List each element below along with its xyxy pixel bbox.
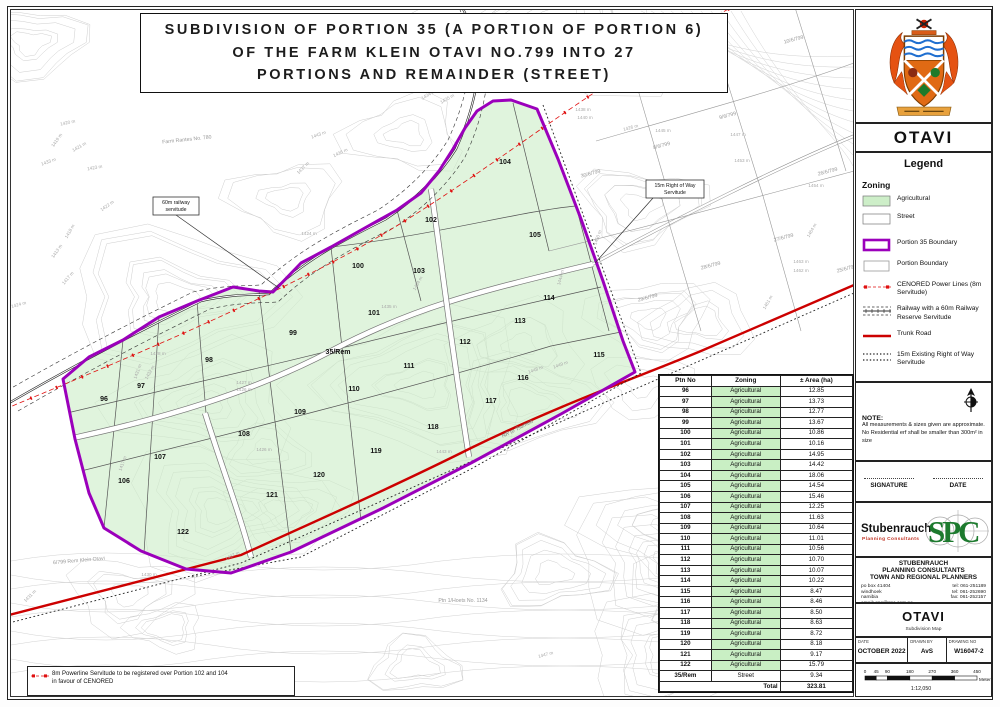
table-row: 119Agricultural8.72	[660, 629, 853, 640]
contour-elevation-label: 1422 m	[99, 199, 115, 212]
ptn-no-cell: 99	[660, 418, 712, 429]
area-cell: 14.95	[780, 449, 852, 460]
note-line1: All measurements & sizes given are appro…	[862, 422, 985, 430]
ptn-no-cell: 109	[660, 523, 712, 534]
contour-elevation-label: 1430 m	[141, 572, 156, 577]
contour-elevation-label: 1426 m	[236, 387, 251, 392]
swatch-street-legend-icon	[862, 212, 892, 226]
zoning-cell: Agricultural	[711, 555, 780, 566]
map-title-line3: PORTIONS AND REMAINDER (STREET)	[141, 64, 727, 86]
ptn-no-cell: 100	[660, 428, 712, 439]
table-header-cell: ± Area (ha)	[780, 376, 852, 387]
ptn-no-cell: 106	[660, 492, 712, 503]
area-cell: 14.54	[780, 481, 852, 492]
table-row: 122Agricultural15.79	[660, 660, 853, 671]
north-arrow-icon	[961, 388, 981, 414]
signature-line: SIGNATURE	[864, 478, 914, 489]
table-row: 107Agricultural12.25	[660, 502, 853, 513]
scale-tick-label: 0	[864, 669, 867, 674]
area-cell: 18.06	[780, 470, 852, 481]
scale-bar-box: 04590180270360450Meters1:12,050	[855, 663, 992, 697]
area-cell: 8.63	[780, 618, 852, 629]
zoning-cell: Agricultural	[711, 660, 780, 671]
table-row: 121Agricultural9.17	[660, 650, 853, 661]
legend-items: Portion 35 BoundaryPortion BoundaryCENOR…	[862, 238, 985, 367]
zoning-cell: Agricultural	[711, 639, 780, 650]
zoning-cell: Agricultural	[711, 608, 780, 619]
portion-label: 120	[313, 472, 325, 479]
area-cell: 8.46	[780, 597, 852, 608]
otavi-coat-of-arms-icon	[882, 13, 966, 119]
town-name-box: OTAVI	[855, 123, 992, 152]
contour-elevation-label: 1433 m	[40, 157, 56, 167]
contour-elevation-label: 1413 m	[50, 243, 63, 259]
portion-label: 35/Rem	[326, 349, 351, 356]
zoning-cell: Agricultural	[711, 428, 780, 439]
area-cell: 12.85	[780, 386, 852, 397]
logo-firm-name: Stubenrauch	[861, 523, 931, 535]
ptn-no-cell: 102	[660, 449, 712, 460]
firm-phone-line: fax: 061-252157	[951, 595, 986, 601]
portion-label: 122	[177, 529, 189, 536]
servitude-callout-text: Servitude	[664, 190, 686, 196]
area-cell: 8.72	[780, 629, 852, 640]
ptn-no-cell: 104	[660, 470, 712, 481]
area-cell: 12.77	[780, 407, 852, 418]
contour-elevation-label: 1443 m	[310, 130, 326, 140]
firm-line1: STUBENRAUCH	[861, 560, 986, 567]
contour-elevation-label: 1435 m	[381, 304, 396, 309]
contour-elevation-label: 1443 m	[436, 449, 451, 454]
servitude-callout: 15m Right of WayServitude	[595, 180, 704, 263]
scale-ratio-label: 1:12,050	[911, 686, 931, 692]
spc-monogram-icon: SPC	[925, 508, 989, 554]
zoning-cell: Agricultural	[711, 418, 780, 429]
powerline-note: 8m Powerline Servitude to be registered …	[27, 666, 295, 696]
area-cell: 10.07	[780, 565, 852, 576]
zoning-cell: Agricultural	[711, 513, 780, 524]
table-header-row: Ptn NoZoning± Area (ha)	[660, 376, 853, 387]
contour-elevation-label: 1417 m	[61, 270, 75, 285]
legend-item: Portion 35 Boundary	[862, 238, 985, 252]
date-line: DATE	[933, 478, 983, 489]
zoning-items: AgriculturalStreet	[862, 194, 985, 226]
area-cell: 10.64	[780, 523, 852, 534]
contour-elevation-label: 1420 m	[60, 118, 76, 126]
scale-tick-label: 270	[928, 669, 936, 674]
railway-legend-icon	[862, 304, 892, 318]
purple-box-legend-icon	[862, 238, 892, 252]
contour-elevation-label: 1428 m	[150, 351, 165, 356]
titleblock-row: DATE OCTOBER 2022 DRAWN BY AvS DRAWING N…	[855, 637, 992, 663]
portion-label: 107	[154, 454, 166, 461]
project-box: OTAVI Subdivision Map	[855, 603, 992, 637]
project-subtitle: Subdivision Map	[856, 627, 991, 632]
servitude-callout: 60m railwayservitude	[153, 197, 279, 288]
portion-label: 115	[593, 352, 604, 359]
contour-elevation-label: 1424 m	[11, 300, 27, 309]
contour-elevation-label: 1440 m	[577, 115, 592, 120]
ptn-no-cell: 98	[660, 407, 712, 418]
farm-parcel-label: 8/6/799	[653, 141, 671, 151]
area-cell: 15.46	[780, 492, 852, 503]
contour-elevation-label: 1454 m	[808, 183, 823, 188]
portion-label: 118	[427, 424, 438, 431]
map-title-line2: OF THE FARM KLEIN OTAVI NO.799 INTO 27	[141, 42, 727, 64]
area-cell: 8.50	[780, 608, 852, 619]
scale-unit-label: Meters	[979, 677, 991, 682]
area-cell: 10.70	[780, 555, 852, 566]
ptn-no-cell: 111	[660, 544, 712, 555]
swatch-agri-legend-icon	[862, 194, 892, 208]
area-cell: 10.16	[780, 439, 852, 450]
table-row: 106Agricultural15.46	[660, 492, 853, 503]
zoning-cell: Agricultural	[711, 481, 780, 492]
portion-label: 102	[425, 217, 437, 224]
zoning-cell: Agricultural	[711, 576, 780, 587]
table-row: 97Agricultural13.73	[660, 397, 853, 408]
portion-label: 121	[266, 492, 278, 499]
portion-label: 109	[294, 409, 306, 416]
ptn-no-cell: 103	[660, 460, 712, 471]
farm-parcel-label: 10/6/799	[783, 34, 804, 45]
table-row: 100Agricultural10.86	[660, 428, 853, 439]
portion-table: Ptn NoZoning± Area (ha)96Agricultural12.…	[659, 375, 853, 692]
area-cell: 9.34	[780, 671, 852, 682]
contour-elevation-label: 1419 m	[50, 132, 63, 148]
zoning-cell: Agricultural	[711, 586, 780, 597]
legend-item: 15m Existing Right of Way Servitude	[862, 350, 985, 367]
table-header-cell: Zoning	[711, 376, 780, 387]
portion-label: 108	[238, 431, 250, 438]
ptn-no-cell: 119	[660, 629, 712, 640]
drawn-by-value: AvS	[908, 648, 945, 655]
portion-label: 104	[499, 159, 511, 166]
ptn-no-cell: 114	[660, 576, 712, 587]
area-cell: 9.17	[780, 650, 852, 661]
legend-box: Legend Zoning AgriculturalStreet Portion…	[855, 152, 992, 382]
area-cell: 11.01	[780, 534, 852, 545]
table-row: 112Agricultural10.70	[660, 555, 853, 566]
legend-item-label: Railway with a 60m Railway Reserve Servi…	[897, 304, 985, 321]
contour-elevation-label: 1424 m	[301, 231, 316, 236]
firm-line2: PLANNING CONSULTANTS	[861, 567, 986, 574]
farm-parcel-label: 25/6/799	[836, 263, 854, 274]
portion-label: 106	[118, 478, 130, 485]
portion-label: 112	[459, 339, 470, 346]
zoning-item-label: Agricultural	[897, 194, 930, 203]
farm-parcel-label: 27/6/799	[773, 232, 794, 243]
zoning-cell: Agricultural	[711, 386, 780, 397]
portion-area-table: Ptn NoZoning± Area (ha)96Agricultural12.…	[658, 374, 854, 693]
ptn-no-cell: 116	[660, 597, 712, 608]
area-cell: 13.67	[780, 418, 852, 429]
farm-parcel-label: 29/6/799	[637, 292, 658, 303]
portion-label: 100	[352, 263, 364, 270]
ptn-no-cell: 112	[660, 555, 712, 566]
contour-elevation-label: 1447 m	[730, 132, 745, 137]
power-line-legend-icon	[862, 280, 892, 294]
table-row: 98Agricultural12.77	[660, 407, 853, 418]
servitude-callout-text: 15m Right of Way	[654, 183, 695, 189]
farm-parcel-label: 6/799 Rem Klein Otavi	[53, 556, 105, 567]
zoning-cell: Agricultural	[711, 544, 780, 555]
table-header-cell: Ptn No	[660, 376, 712, 387]
table-row: 103Agricultural14.42	[660, 460, 853, 471]
legend-item: Trunk Road	[862, 329, 985, 343]
servitude-callout-text: servitude	[165, 207, 186, 213]
zoning-item: Agricultural	[862, 194, 985, 208]
portion-label: 103	[413, 268, 425, 275]
table-row: 99Agricultural13.67	[660, 418, 853, 429]
ptn-no-cell: 113	[660, 565, 712, 576]
portion-label: 117	[485, 398, 496, 405]
zoning-title: Zoning	[862, 180, 985, 190]
portion-label: 97	[137, 383, 145, 390]
otavi-crest-box	[855, 9, 992, 123]
spc-logo-box: Stubenrauch Planning Consultants SPC	[855, 502, 992, 557]
drawn-by-header: DRAWN BY	[910, 639, 932, 644]
farm-parcel-label: 28/6/799	[700, 260, 721, 271]
date-value: OCTOBER 2022	[856, 648, 907, 655]
note-box: NOTE: All measurements & sizes given are…	[855, 382, 992, 461]
table-row: 111Agricultural10.56	[660, 544, 853, 555]
map-title: SUBDIVISION OF PORTION 35 (A PORTION OF …	[140, 13, 728, 93]
area-cell: 10.22	[780, 576, 852, 587]
area-cell: 8.47	[780, 586, 852, 597]
ptn-no-cell: 96	[660, 386, 712, 397]
right-of-way-road	[593, 136, 854, 264]
contour-elevation-label: 1418 m	[64, 223, 76, 239]
ptn-no-cell: 97	[660, 397, 712, 408]
servitude-callout-text: 60m railway	[162, 200, 190, 206]
portion35-area-fill	[63, 100, 635, 573]
total-label-cell: Total	[660, 681, 781, 692]
ptn-no-cell: 115	[660, 586, 712, 597]
ptn-no-cell: 120	[660, 639, 712, 650]
scale-tick-label: 360	[951, 669, 959, 674]
ptn-no-cell: 35/Rem	[660, 671, 712, 682]
area-cell: 10.86	[780, 428, 852, 439]
contour-elevation-label: 1423 m	[87, 164, 103, 172]
area-cell: 10.56	[780, 544, 852, 555]
spc-monogram-text: SPC	[928, 514, 979, 549]
table-row: 105Agricultural14.54	[660, 481, 853, 492]
legend-item-label: Portion Boundary	[897, 259, 948, 268]
area-cell: 12.25	[780, 502, 852, 513]
signature-box: SIGNATURE DATE	[855, 461, 992, 502]
contour-elevation-label: 1447 m	[538, 650, 554, 659]
zoning-cell: Agricultural	[711, 597, 780, 608]
zoning-cell: Agricultural	[711, 492, 780, 503]
powerline-symbol-icon	[31, 673, 49, 679]
contour-elevation-label: 1461 m	[762, 294, 774, 310]
table-row: 118Agricultural8.63	[660, 618, 853, 629]
scale-tick-label: 450	[973, 669, 981, 674]
portion-label: 96	[100, 396, 108, 403]
area-cell: 13.73	[780, 397, 852, 408]
total-value-cell: 323.81	[780, 681, 852, 692]
contour-elevation-label: 1431 m	[23, 589, 37, 603]
firm-line3: TOWN AND REGIONAL PLANNERS	[861, 574, 986, 581]
trunk-road-legend-icon	[862, 329, 892, 343]
ptn-no-cell: 101	[660, 439, 712, 450]
portion-label: 101	[368, 310, 380, 317]
table-row: 110Agricultural11.01	[660, 534, 853, 545]
portion-label: 105	[529, 232, 541, 239]
portion-label: 99	[289, 330, 297, 337]
powerline-note-line1: 8m Powerline Servitude to be registered …	[52, 670, 290, 678]
area-cell: 8.18	[780, 639, 852, 650]
drawing-no-header: DRAWING NO	[949, 639, 977, 644]
ptn-no-cell: 110	[660, 534, 712, 545]
portion-label: 110	[348, 386, 359, 393]
contour-elevation-label: 1464 m	[806, 222, 818, 238]
scale-tick-label: 180	[906, 669, 914, 674]
drawing-no-value: W16047-2	[947, 648, 991, 655]
table-row: 115Agricultural8.47	[660, 586, 853, 597]
legend-item-label: Portion 35 Boundary	[897, 238, 957, 247]
map-title-line1: SUBDIVISION OF PORTION 35 (A PORTION OF …	[141, 19, 727, 41]
area-cell: 11.63	[780, 513, 852, 524]
white-box-legend-icon	[862, 259, 892, 273]
legend-item: Portion Boundary	[862, 259, 985, 273]
zoning-cell: Agricultural	[711, 618, 780, 629]
zoning-cell: Agricultural	[711, 470, 780, 481]
zoning-cell: Agricultural	[711, 534, 780, 545]
farm-parcel-label: 9/6/799	[719, 111, 737, 121]
scale-bar: 04590180270360450Meters1:12,050	[856, 664, 991, 696]
contour-elevation-label: 1450 m	[593, 229, 603, 245]
scale-tick-label: 90	[885, 669, 891, 674]
dotted-legend-icon	[862, 350, 892, 364]
project-name: OTAVI	[856, 609, 991, 624]
table-row: 109Agricultural10.64	[660, 523, 853, 534]
ptn-no-cell: 107	[660, 502, 712, 513]
table-row: 113Agricultural10.07	[660, 565, 853, 576]
table-row: 117Agricultural8.50	[660, 608, 853, 619]
area-cell: 15.79	[780, 660, 852, 671]
zoning-cell: Agricultural	[711, 650, 780, 661]
zoning-cell: Agricultural	[711, 397, 780, 408]
contour-elevation-label: 1462 m	[793, 268, 808, 273]
table-row: 35/RemStreet9.34	[660, 671, 853, 682]
zoning-cell: Agricultural	[711, 565, 780, 576]
contour-elevation-label: 1445 m	[655, 128, 670, 133]
contour-elevation-label: 1438 m	[575, 107, 590, 112]
table-row: 120Agricultural8.18	[660, 639, 853, 650]
portion-label: 119	[370, 448, 381, 455]
zoning-cell: Agricultural	[711, 449, 780, 460]
table-row: 108Agricultural11.63	[660, 513, 853, 524]
legend-item-label: Trunk Road	[897, 329, 931, 338]
zoning-cell: Agricultural	[711, 407, 780, 418]
legend-item: Railway with a 60m Railway Reserve Servi…	[862, 304, 985, 321]
ptn-no-cell: 117	[660, 608, 712, 619]
zoning-cell: Agricultural	[711, 502, 780, 513]
town-name: OTAVI	[894, 128, 953, 148]
zoning-cell: Agricultural	[711, 523, 780, 534]
contour-elevation-label: 1426 m	[623, 123, 639, 132]
portion-label: 114	[543, 295, 554, 302]
table-row: 114Agricultural10.22	[660, 576, 853, 587]
table-row: 101Agricultural10.16	[660, 439, 853, 450]
contour-elevation-label: 1463 m	[793, 259, 808, 264]
ptn-no-cell: 118	[660, 618, 712, 629]
table-row: 96Agricultural12.85	[660, 386, 853, 397]
table-row: 116Agricultural8.46	[660, 597, 853, 608]
legend-item: CENORED Power Lines (8m Servitude)	[862, 280, 985, 297]
area-cell: 14.42	[780, 460, 852, 471]
powerline-note-line2: in favour of CENORED	[52, 678, 290, 686]
table-total-row: Total323.81	[660, 681, 853, 692]
zoning-cell: Agricultural	[711, 439, 780, 450]
legend-title: Legend	[862, 158, 985, 170]
legend-item-label: 15m Existing Right of Way Servitude	[897, 350, 985, 367]
zoning-item: Street	[862, 212, 985, 226]
note-line2: No Residential erf shall be smaller than…	[862, 430, 985, 446]
zoning-cell: Agricultural	[711, 629, 780, 640]
scale-tick-label: 45	[874, 669, 880, 674]
note-title: NOTE:	[862, 415, 985, 422]
contour-elevation-label: 1427 m	[236, 380, 251, 385]
contour-elevation-label: 1453 m	[734, 158, 749, 163]
contour-elevation-label: 1421 m	[71, 141, 87, 153]
table-row: 102Agricultural14.95	[660, 449, 853, 460]
firm-phone-line: tel: 061-251189	[951, 584, 986, 590]
portion-label: 111	[404, 363, 415, 370]
portion-label: 98	[205, 357, 213, 364]
table-row: 104Agricultural18.06	[660, 470, 853, 481]
zoning-cell: Agricultural	[711, 460, 780, 471]
date-header: DATE	[858, 639, 869, 644]
ptn-no-cell: 122	[660, 660, 712, 671]
firm-box: STUBENRAUCH PLANNING CONSULTANTS TOWN AN…	[855, 557, 992, 603]
ptn-no-cell: 121	[660, 650, 712, 661]
farm-parcel-label: Ptn 1/Hoets No. 1134	[438, 598, 487, 604]
zoning-item-label: Street	[897, 212, 915, 221]
legend-item-label: CENORED Power Lines (8m Servitude)	[897, 280, 985, 297]
logo-firm-sub: Planning Consultants	[862, 537, 919, 542]
ptn-no-cell: 108	[660, 513, 712, 524]
contour-elevation-label: 1426 m	[256, 447, 271, 452]
farm-parcel-label: Farm Rantes No. 780	[162, 134, 212, 145]
portion-label: 113	[514, 318, 525, 325]
ptn-no-cell: 105	[660, 481, 712, 492]
zoning-cell: Street	[711, 671, 780, 682]
farm-parcel-label: 30/6/799	[580, 168, 601, 179]
portion-label: 116	[517, 375, 528, 382]
